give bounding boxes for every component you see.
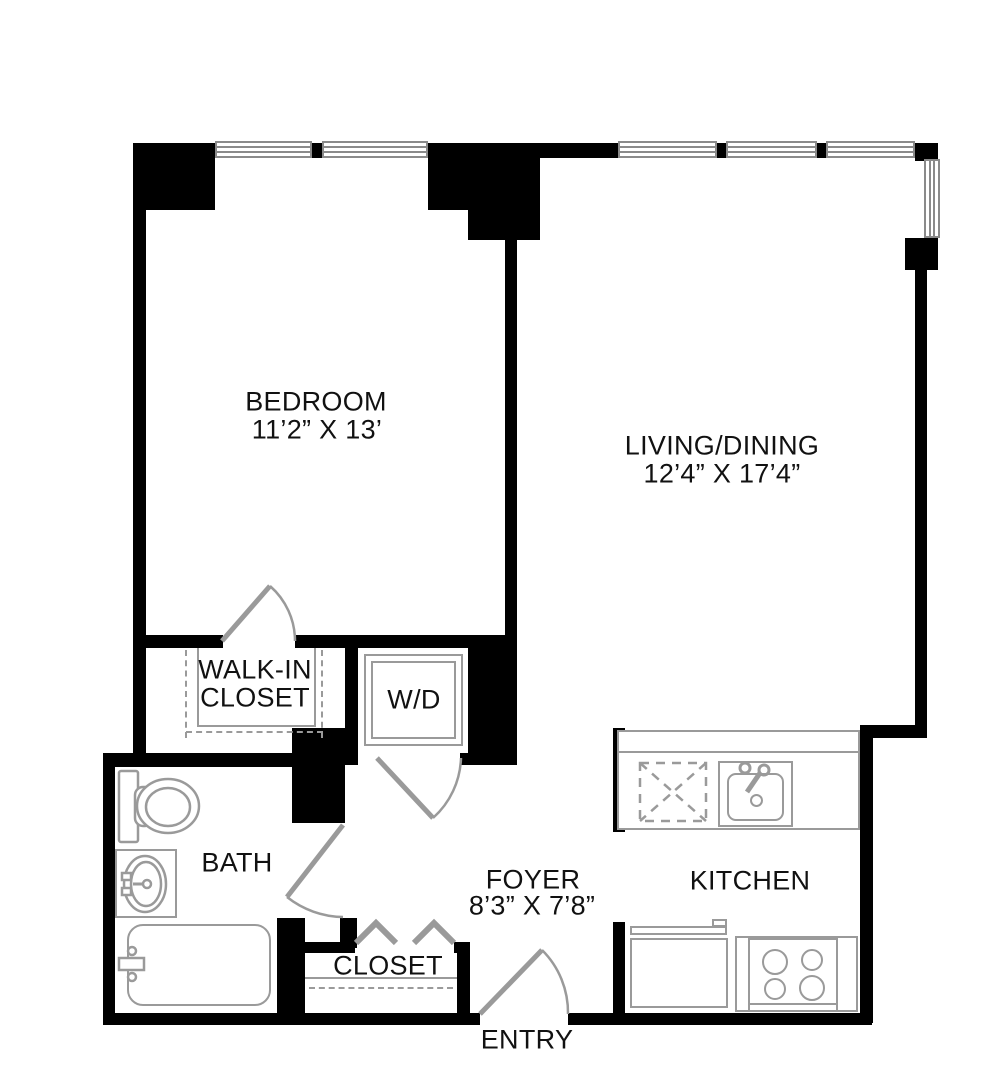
wall-segment bbox=[915, 270, 927, 738]
wall-segment bbox=[345, 648, 358, 765]
kitchen-label: KITCHEN bbox=[690, 868, 811, 895]
bedroom-label: BEDROOM bbox=[245, 389, 387, 416]
closet-bifold-door bbox=[356, 923, 454, 943]
wall-segment bbox=[133, 210, 146, 755]
entry-door bbox=[480, 950, 568, 1014]
living-dining-label: LIVING/DINING bbox=[625, 433, 819, 460]
closet-rod-dash bbox=[309, 987, 453, 989]
toilet-fixture bbox=[119, 771, 199, 842]
window bbox=[924, 159, 940, 238]
kitchen-counter-edge bbox=[617, 751, 860, 753]
walk-in-closet-door bbox=[222, 586, 295, 641]
wall-segment bbox=[613, 922, 625, 1013]
wall-segment bbox=[860, 738, 873, 1023]
wall-segment bbox=[860, 725, 927, 738]
wall-segment bbox=[103, 1013, 480, 1025]
window bbox=[726, 141, 817, 158]
burner bbox=[801, 949, 823, 971]
closet-label: CLOSET bbox=[333, 953, 443, 980]
window bbox=[215, 141, 312, 158]
fridge-door-bar bbox=[630, 926, 727, 935]
wall-segment bbox=[428, 143, 540, 210]
entry-label: ENTRY bbox=[481, 1027, 574, 1054]
wall-segment bbox=[277, 918, 305, 1013]
stove-fixture bbox=[748, 938, 838, 1005]
living-dining-dims: 12’4” X 17’4” bbox=[644, 461, 801, 488]
wall-segment bbox=[905, 238, 938, 270]
floor-plan: BEDROOM 11’2” X 13’ LIVING/DINING 12’4” … bbox=[0, 0, 1000, 1088]
wall-segment bbox=[817, 143, 826, 158]
burner bbox=[764, 978, 786, 1000]
bath-sink-counter bbox=[115, 849, 177, 918]
stove-front-strip bbox=[748, 1003, 838, 1012]
wall-segment bbox=[133, 143, 215, 210]
window bbox=[826, 141, 915, 158]
walk-in-closet-rod-dash bbox=[186, 731, 323, 733]
wall-segment bbox=[717, 143, 726, 158]
foyer-label: FOYER bbox=[486, 867, 581, 894]
wall-segment bbox=[292, 728, 345, 823]
walk-in-closet-rod-dash bbox=[321, 650, 323, 738]
wall-segment bbox=[468, 648, 517, 765]
wall-segment bbox=[540, 143, 618, 158]
wall-segment bbox=[468, 210, 540, 240]
wall-segment bbox=[312, 143, 322, 158]
walk-in-closet-label: CLOSET bbox=[200, 685, 310, 712]
wall-segment bbox=[457, 953, 470, 1013]
wall-segment bbox=[505, 240, 517, 635]
foyer-dims: 8’3” X 7’8” bbox=[469, 893, 595, 920]
wall-segment bbox=[295, 635, 517, 648]
wall-segment bbox=[103, 753, 115, 1015]
wall-segment bbox=[460, 753, 468, 765]
wall-segment bbox=[568, 1013, 872, 1025]
wall-segment bbox=[454, 942, 470, 953]
bathtub-fixture bbox=[127, 924, 271, 1006]
burner bbox=[799, 975, 825, 1001]
wall-segment bbox=[133, 635, 223, 648]
fridge-fixture bbox=[630, 938, 728, 1008]
burner bbox=[762, 949, 788, 975]
washer-dryer-label: W/D bbox=[387, 687, 440, 714]
kitchen-sink-drain bbox=[750, 794, 763, 807]
washer-dryer-door bbox=[377, 758, 461, 818]
window bbox=[618, 141, 717, 158]
window bbox=[322, 141, 428, 158]
walk-in-closet-rod-dash bbox=[185, 650, 187, 738]
bedroom-dims: 11’2” X 13’ bbox=[252, 417, 382, 444]
walk-in-closet-label: WALK-IN bbox=[198, 657, 312, 684]
bath-label: BATH bbox=[201, 850, 272, 877]
fridge-handle bbox=[712, 919, 727, 927]
bath-door bbox=[287, 825, 343, 917]
